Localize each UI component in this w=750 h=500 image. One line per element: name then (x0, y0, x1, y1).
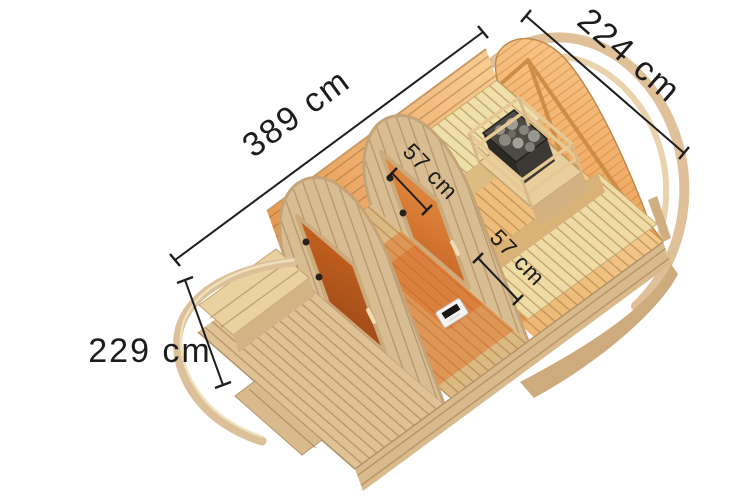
front-width-label: 229 cm (88, 332, 212, 370)
barrel-sauna-dimension-illustration: 389 cm 224 cm 229 cm 57 cm 57 cm (0, 0, 750, 500)
product-dimension-figure: 389 cm 224 cm 229 cm 57 cm 57 cm (0, 0, 750, 500)
length-label: 389 cm (235, 61, 357, 165)
